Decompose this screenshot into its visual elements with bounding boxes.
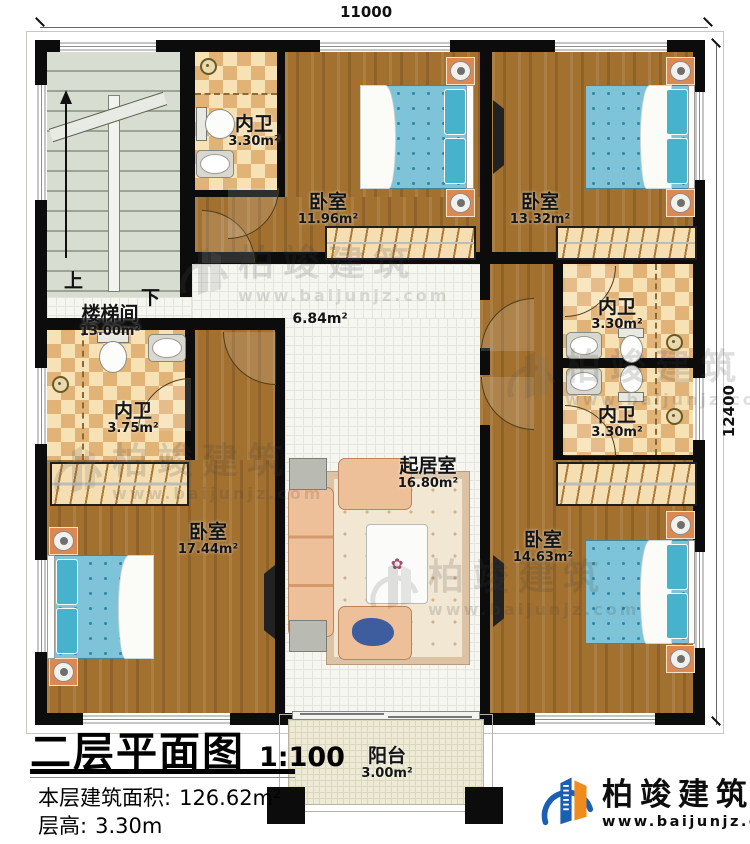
room-label-bathroom-right-lower: 内卫 3.30m² bbox=[572, 402, 662, 444]
bed-sheet bbox=[118, 555, 154, 659]
dimension-tick bbox=[703, 17, 713, 27]
floor-height-label: 层高: bbox=[38, 810, 87, 840]
title-underline-thin bbox=[30, 777, 295, 778]
stair-railing bbox=[108, 95, 120, 292]
title-underline bbox=[30, 769, 295, 774]
room-label-bedroom-c: 卧室 17.44m² bbox=[158, 518, 258, 562]
partition-dashed bbox=[195, 93, 277, 95]
shower-icon bbox=[52, 376, 69, 393]
window bbox=[35, 85, 47, 200]
nightstand bbox=[666, 511, 695, 539]
tv-icon bbox=[493, 100, 504, 174]
room-label-balcony: 阳台 3.00m² bbox=[335, 744, 439, 784]
room-label-bathroom-top: 内卫 3.30m² bbox=[208, 110, 300, 154]
side-table bbox=[289, 458, 327, 490]
pillow bbox=[666, 138, 688, 184]
partition-dashed bbox=[82, 330, 84, 460]
coffee-table: ✿ bbox=[366, 524, 428, 604]
floor-area-line: 本层建筑面积: 126.62m² bbox=[38, 782, 281, 812]
stair-up-label: 上 bbox=[64, 266, 83, 293]
bed-sheet bbox=[360, 85, 396, 189]
room-label-stairwell: 楼梯间 13.00m² bbox=[55, 300, 165, 344]
sink-icon bbox=[566, 368, 602, 395]
window bbox=[60, 40, 156, 52]
pillow bbox=[666, 89, 688, 135]
floor-height-value: 3.30m bbox=[95, 814, 162, 838]
nightstand bbox=[666, 189, 695, 217]
wardrobe bbox=[556, 462, 697, 506]
shower-icon bbox=[200, 58, 217, 75]
sink-icon bbox=[566, 332, 602, 359]
headboard bbox=[688, 85, 695, 189]
nightstand bbox=[666, 645, 695, 673]
room-label-living: 起居室 16.80m² bbox=[378, 452, 478, 496]
room-label-bedroom-b: 卧室 13.32m² bbox=[490, 188, 590, 232]
floor-area-label: 本层建筑面积: bbox=[38, 782, 171, 812]
floor-height-line: 层高: 3.30m bbox=[38, 810, 162, 840]
nightstand bbox=[446, 57, 475, 85]
toilet-icon bbox=[99, 341, 127, 373]
toilet-icon bbox=[620, 365, 643, 393]
pillow bbox=[56, 559, 78, 605]
nightstand bbox=[49, 527, 78, 555]
toilet-icon bbox=[618, 392, 644, 402]
dimension-tick bbox=[35, 17, 45, 27]
floor-plan-page: 11000 12400 bbox=[0, 0, 750, 844]
balcony-pillar bbox=[465, 787, 503, 824]
room-label-bathroom-left: 内卫 3.75m² bbox=[88, 398, 178, 440]
headboard bbox=[47, 555, 55, 659]
toilet-icon bbox=[620, 335, 643, 363]
pillow bbox=[56, 608, 78, 654]
brand-logo: 柏竣建筑 www.baijunjz.com bbox=[538, 768, 750, 830]
window bbox=[555, 40, 667, 52]
window bbox=[535, 713, 655, 725]
person-figure bbox=[352, 618, 394, 646]
pillow bbox=[444, 138, 466, 184]
window bbox=[35, 560, 47, 652]
room-label-bedroom-d: 卧室 14.63m² bbox=[493, 526, 593, 570]
sink-icon bbox=[196, 150, 234, 178]
headboard bbox=[688, 540, 695, 644]
shower-icon bbox=[666, 334, 683, 351]
headboard bbox=[466, 85, 474, 189]
pillow bbox=[666, 593, 688, 639]
dimension-top: 11000 bbox=[340, 3, 392, 21]
window bbox=[320, 40, 450, 52]
room-label-corridor: 6.84m² bbox=[275, 308, 365, 330]
window bbox=[693, 378, 705, 440]
sofa bbox=[288, 487, 334, 637]
pillow bbox=[444, 89, 466, 135]
dimension-top-line bbox=[40, 27, 708, 28]
tv-icon bbox=[264, 565, 275, 639]
nightstand bbox=[446, 189, 475, 217]
nightstand bbox=[666, 57, 695, 85]
dimension-right: 12400 bbox=[720, 385, 738, 437]
side-table bbox=[289, 620, 327, 652]
nightstand bbox=[49, 658, 78, 686]
room-label-bathroom-right-upper: 内卫 3.30m² bbox=[572, 294, 662, 336]
brand-logo-icon bbox=[538, 768, 594, 830]
window bbox=[35, 368, 47, 444]
room-label-bedroom-a: 卧室 11.96m² bbox=[278, 188, 378, 232]
pillow bbox=[666, 544, 688, 590]
shower-icon bbox=[666, 408, 683, 425]
wardrobe bbox=[50, 462, 189, 506]
stair-direction-arrow bbox=[58, 90, 74, 260]
floor-area-value: 126.62m² bbox=[179, 786, 281, 810]
dimension-right-line bbox=[716, 45, 717, 725]
